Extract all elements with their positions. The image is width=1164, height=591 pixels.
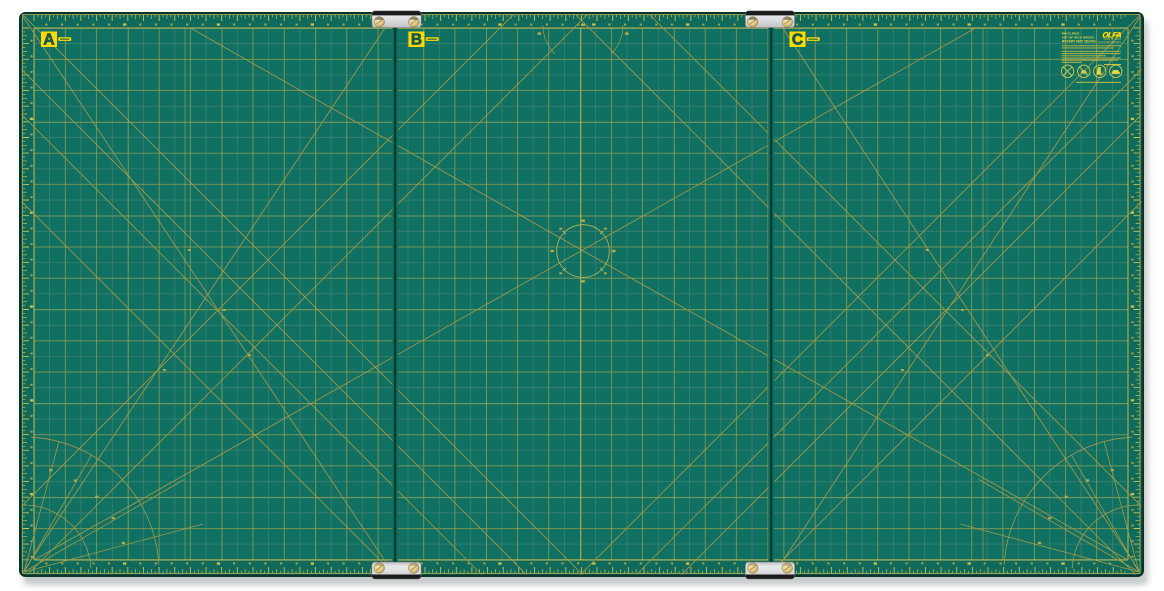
svg-text:OLFA CORPORATION: OLFA CORPORATION [1098,41,1122,44]
svg-text:A: A [43,32,54,49]
svg-text:ROTARY MAT 35x70in: ROTARY MAT 35x70in [1062,39,1096,43]
svg-text:MADE IN JAPAN: MADE IN JAPAN [1104,38,1122,41]
svg-text:B: B [411,32,422,49]
svg-text:C: C [792,32,803,49]
